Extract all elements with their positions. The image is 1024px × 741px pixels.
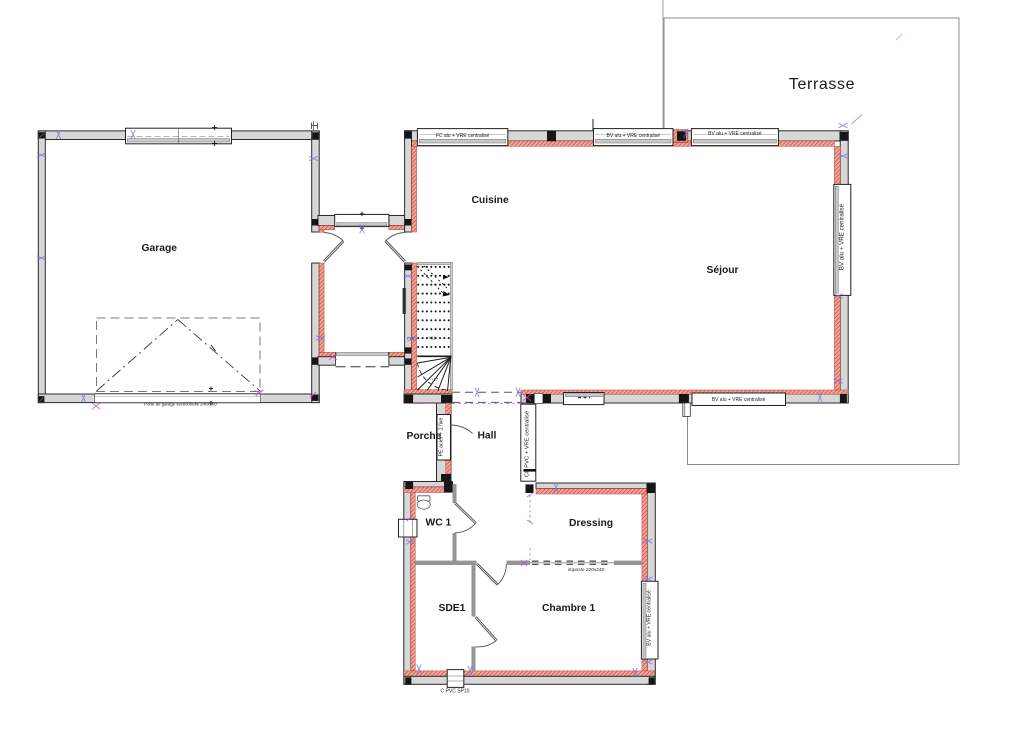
svg-text:Dressing: Dressing (569, 518, 613, 529)
svg-text:Porte de garage sectionnelle 2: Porte de garage sectionnelle 240x200 (144, 402, 217, 407)
svg-text:Porche: Porche (407, 431, 442, 442)
svg-text:Garage: Garage (142, 243, 178, 254)
svg-text:imposte 220x240: imposte 220x240 (568, 567, 605, 573)
svg-text:C PVC SP10: C PVC SP10 (441, 689, 470, 695)
svg-text:BV alu + VRE centralisé: BV alu + VRE centralisé (647, 590, 653, 646)
svg-text:Hall: Hall (478, 431, 497, 442)
svg-text:WC 1: WC 1 (426, 518, 452, 529)
svg-text:SDE1: SDE1 (439, 603, 466, 614)
svg-text:FC alu + VRE centralisé: FC alu + VRE centralisé (436, 133, 490, 139)
svg-text:BV alu + VRE centralisé: BV alu + VRE centralisé (839, 203, 846, 270)
svg-text:Chambre 1: Chambre 1 (542, 603, 595, 614)
svg-text:BV alu + VRE centralisé: BV alu + VRE centralisé (712, 397, 766, 403)
svg-text:Séjour: Séjour (707, 265, 739, 276)
svg-text:+01: +01 (428, 336, 436, 341)
svg-text:BV alu + VRE centralisé: BV alu + VRE centralisé (607, 133, 661, 139)
svg-text:Terrasse: Terrasse (789, 76, 855, 93)
svg-text:+17: +17 (431, 377, 439, 382)
svg-text:BV alu + VRE centralisé: BV alu + VRE centralisé (708, 131, 762, 137)
svg-text:Cuisine: Cuisine (472, 195, 509, 206)
svg-text:CF PVC + VRE centralisé: CF PVC + VRE centralisé (525, 411, 531, 477)
